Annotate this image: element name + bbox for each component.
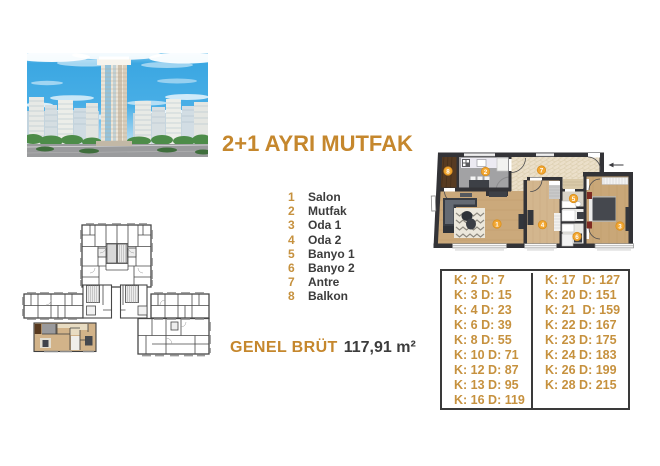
svg-text:8: 8	[446, 168, 450, 175]
svg-text:2: 2	[484, 169, 488, 176]
svg-text:7: 7	[540, 167, 544, 174]
svg-text:6: 6	[575, 234, 579, 241]
svg-text:5: 5	[572, 196, 576, 203]
svg-text:4: 4	[541, 222, 545, 229]
svg-text:3: 3	[618, 223, 622, 230]
svg-text:1: 1	[495, 221, 499, 228]
